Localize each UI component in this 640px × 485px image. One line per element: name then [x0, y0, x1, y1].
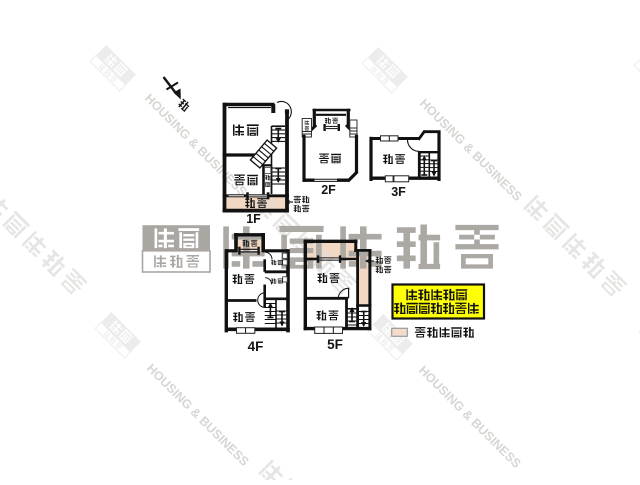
svg-text:4F: 4F	[248, 339, 264, 354]
svg-text:2F: 2F	[321, 183, 336, 197]
svg-text:5F: 5F	[327, 337, 343, 352]
svg-text:1F: 1F	[246, 212, 261, 226]
svg-text:3F: 3F	[391, 185, 406, 199]
